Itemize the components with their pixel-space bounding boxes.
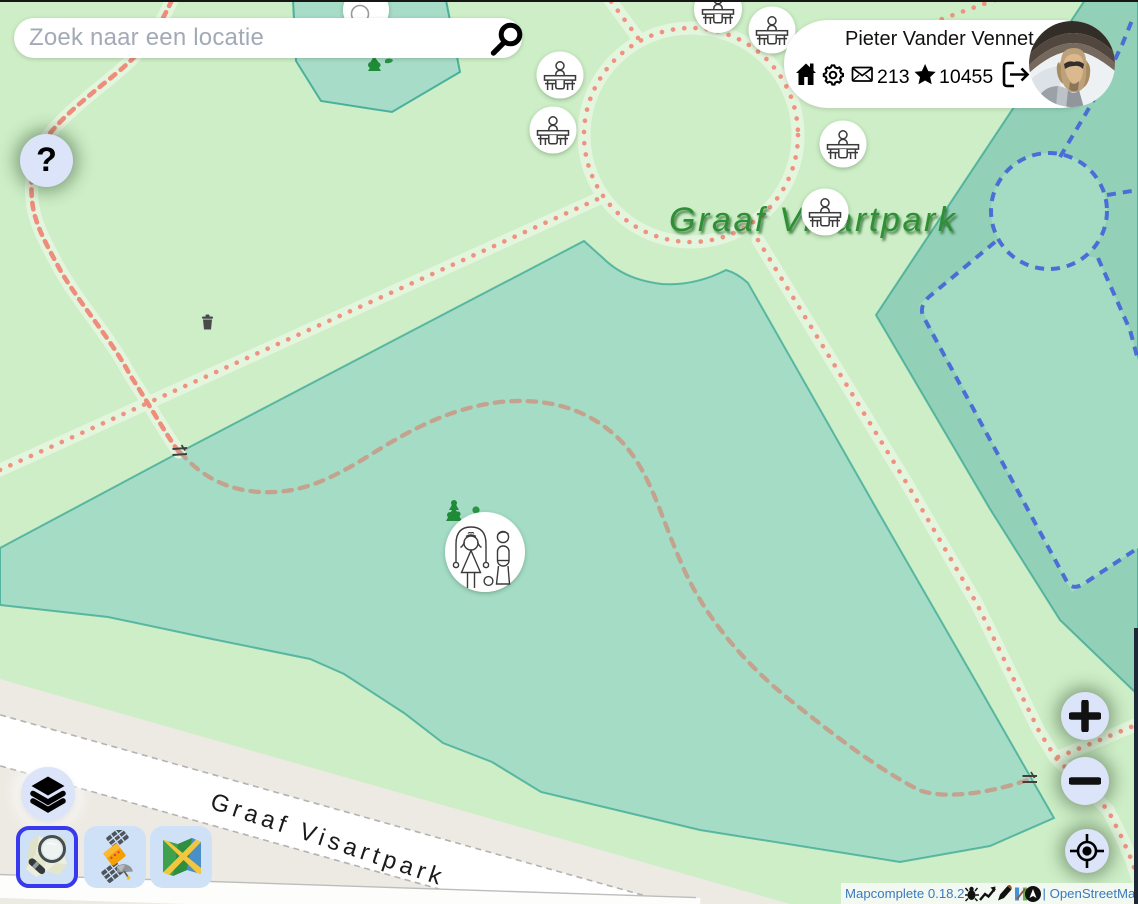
svg-text:10455: 10455 <box>939 66 993 88</box>
svg-text:213: 213 <box>877 66 910 88</box>
